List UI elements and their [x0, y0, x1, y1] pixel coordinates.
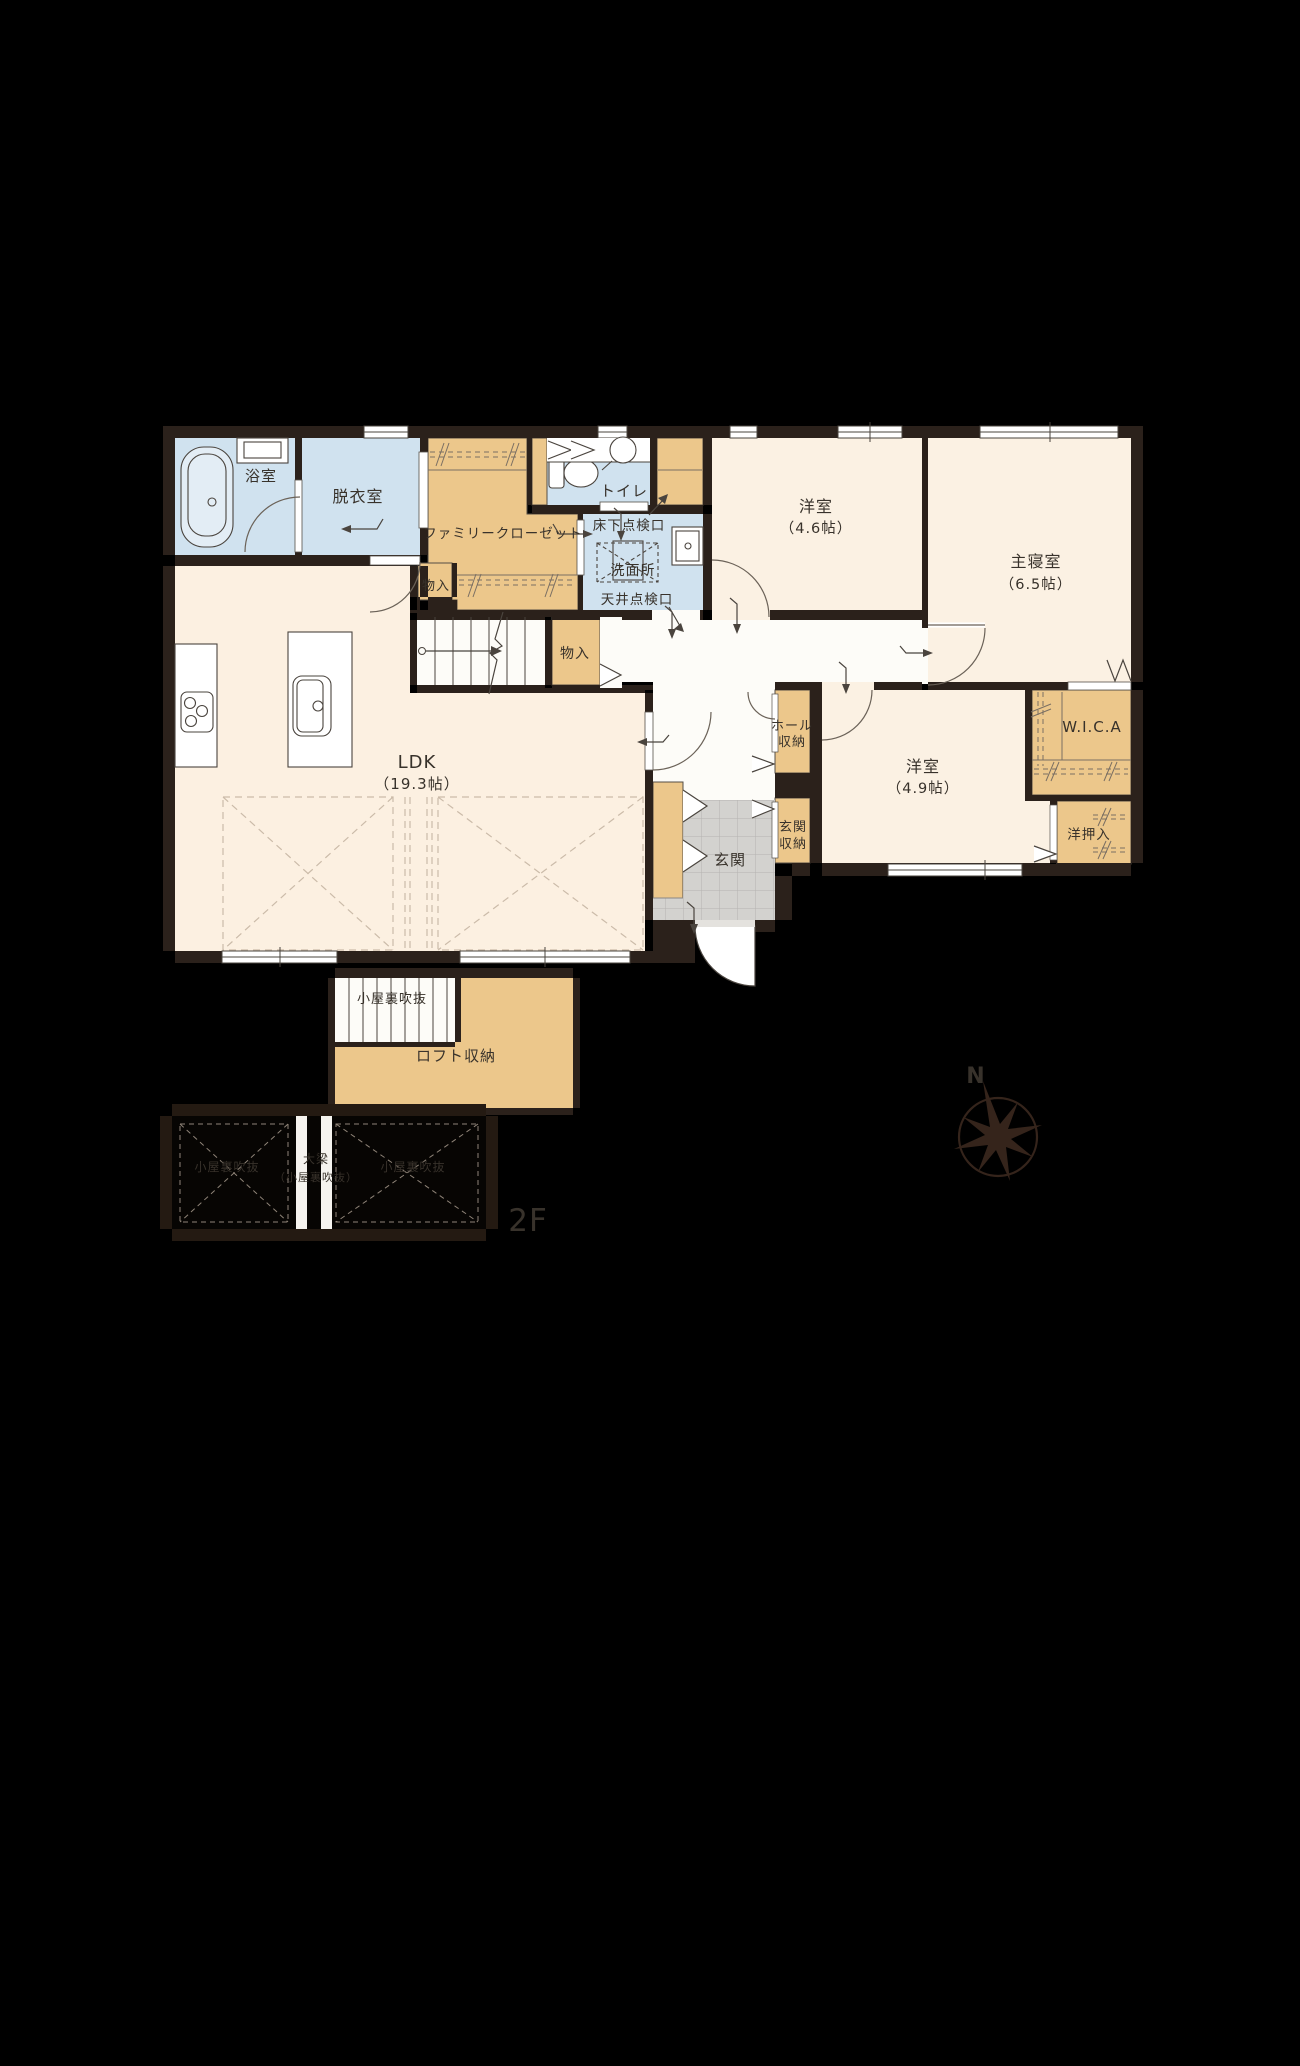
- kitchen-island: [288, 632, 352, 767]
- toilet-cabinet-right: [657, 438, 703, 505]
- compass-rose: N: [954, 1064, 1042, 1181]
- label-toilet: トイレ: [600, 482, 648, 500]
- floorplan-image: 浴室 脱衣室 ファミリークローゼット 物入 トイレ 床下点検口 洗面所 天井点検…: [0, 0, 1300, 2066]
- entrance-door-leaf: [695, 926, 755, 986]
- sliding-door-toilet: [600, 502, 648, 511]
- label-stairwell-void: 小屋裏吹抜: [357, 991, 427, 1007]
- window: [598, 426, 627, 438]
- label-dressing: 脱衣室: [332, 487, 383, 506]
- loft-stairwell: [335, 978, 455, 1042]
- label-beam-1: 大梁: [303, 1151, 329, 1166]
- label-bedroom-b: 洋室: [906, 757, 940, 776]
- opening-dressing-closet: [419, 452, 428, 528]
- room-bedroom-b: [822, 690, 1050, 864]
- label-ldk-size: （19.3帖）: [374, 775, 459, 793]
- label-attic-left: 小屋裏吹抜: [194, 1159, 259, 1174]
- label-bedroom-b-size: （4.9帖）: [887, 780, 960, 797]
- compass-star: [954, 1081, 1042, 1181]
- hall-upper: [622, 620, 922, 682]
- window: [730, 426, 757, 438]
- label-attic-right: 小屋裏吹抜: [380, 1159, 445, 1174]
- label-monoire-a: 物入: [422, 579, 450, 594]
- opening-genkan-storage: [772, 802, 778, 858]
- label-monoire-b: 物入: [560, 646, 590, 662]
- label-underfloor-hatch: 床下点検口: [593, 518, 666, 534]
- opening-bedroom-a: [712, 610, 770, 620]
- label-genkan-storage-1: 玄関: [779, 820, 807, 835]
- label-beam-2: （小屋裏吹抜）: [274, 1170, 358, 1184]
- label-bedroom-a: 洋室: [799, 497, 833, 516]
- label-master-bedroom: 主寝室: [1010, 552, 1061, 571]
- floor1-plan: 浴室 脱衣室 ファミリークローゼット 物入 トイレ 床下点検口 洗面所 天井点検…: [163, 422, 1143, 986]
- label-floor-tag-2f: 2F: [508, 1203, 548, 1239]
- label-hall-storage-1: ホール: [771, 719, 813, 734]
- label-loft-storage: ロフト収納: [416, 1047, 496, 1065]
- label-genkan: 玄関: [714, 851, 746, 869]
- toilet-cabinet-left: [532, 438, 547, 505]
- label-oshiire: 洋押入: [1067, 827, 1111, 843]
- label-wic: W.I.C.A: [1062, 718, 1122, 736]
- sliding-door-wic: [1068, 682, 1131, 690]
- label-washroom: 洗面所: [611, 563, 656, 579]
- label-ceiling-hatch: 天井点検口: [601, 592, 674, 608]
- label-bath: 浴室: [245, 467, 277, 485]
- floor2-plan: 小屋裏吹抜 ロフト収納 小屋裏吹抜 大梁 （小屋裏吹抜） 小屋裏吹抜 2F: [160, 968, 580, 1241]
- compass-north-label: N: [966, 1064, 985, 1089]
- bathtub-icon: [181, 447, 233, 547]
- label-genkan-storage-2: 収納: [779, 837, 807, 852]
- kitchen-counter: [175, 644, 217, 767]
- label-bedroom-a-size: （4.6帖）: [780, 520, 853, 537]
- vanity-icon: [672, 527, 703, 565]
- label-ldk: LDK: [398, 752, 437, 773]
- entrance-sill: [695, 920, 755, 927]
- opening-dressing-ldk: [370, 556, 420, 565]
- label-hall-storage-2: 収納: [778, 735, 806, 750]
- label-family-closet: ファミリークローゼット: [423, 526, 583, 542]
- shoe-cabinet: [653, 782, 683, 898]
- window: [364, 426, 408, 438]
- shower-counter: [237, 438, 288, 463]
- opening-bath-door: [295, 480, 302, 552]
- label-master-bedroom-size: （6.5帖）: [1000, 576, 1073, 593]
- floorplan-svg: 浴室 脱衣室 ファミリークローゼット 物入 トイレ 床下点検口 洗面所 天井点検…: [0, 0, 1300, 2066]
